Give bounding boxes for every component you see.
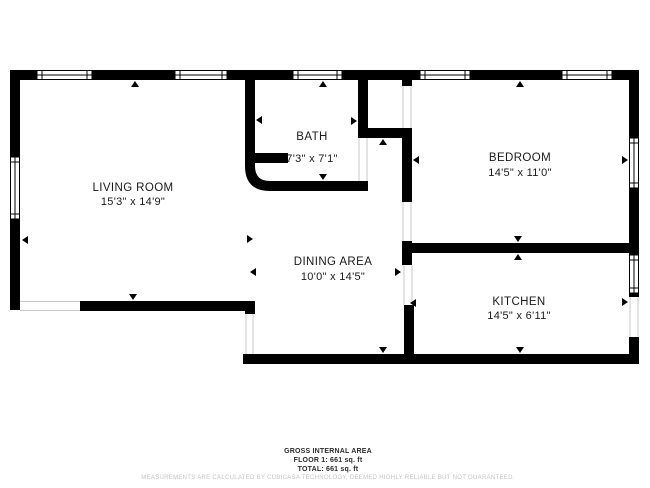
dimension-arrow-icon [22,236,28,244]
dimension-arrow-icon [256,116,262,124]
dimension-arrow-icon [129,294,137,300]
room-name: BEDROOM [489,152,551,164]
dimension-arrow-icon [622,298,628,306]
room-name: LIVING ROOM [92,182,173,194]
footer: GROSS INTERNAL AREA FLOOR 1: 661 sq. ft … [141,448,514,481]
living-room-bottom-wall [80,301,255,311]
room-dimensions: 7'3" x 7'1" [286,153,337,165]
dimension-arrow-icon [319,174,327,180]
total-area-line: TOTAL: 661 sq. ft [298,466,359,473]
central-wall-upper-segment [402,128,412,202]
window-symbol [630,138,639,188]
window-symbol [37,71,92,80]
floor-area-line: FLOOR 1: 661 sq. ft [294,457,363,464]
measurement-disclaimer: MEASUREMENTS ARE CALCULATED BY CUBICASA … [141,475,514,481]
room-labels: LIVING ROOM 15'3" x 14'9" BATH 7'3" x 7'… [92,131,551,322]
bedroom-kitchen-divider-wall [402,243,639,253]
central-wall-top-stub [402,80,412,86]
gross-internal-area-title: GROSS INTERNAL AREA [284,448,372,455]
room-name: DINING AREA [294,256,373,268]
room-name: KITCHEN [492,296,545,308]
dimension-arrow-icon [514,236,522,242]
dimension-arrow-icon [351,117,357,125]
window-symbol [11,157,20,219]
room-dimensions: 15'3" x 14'9" [101,196,165,208]
room-label-bath: BATH 7'3" x 7'1" [286,131,337,165]
dimension-arrow-icon [514,254,522,260]
room-dimensions: 14'5" x 11'0" [488,167,551,179]
dimension-arrow-icon [247,235,253,243]
dimension-arrow-icon [395,268,401,276]
room-label-bedroom: BEDROOM 14'5" x 11'0" [488,152,551,179]
window-symbol [630,255,639,293]
window-symbol [420,71,470,80]
room-name: BATH [296,131,327,143]
central-wall-lower-segment [404,305,414,364]
dimension-arrow-icon [379,139,387,145]
room-label-dining-area: DINING AREA 10'0" x 14'5" [294,256,373,283]
living-room-bottom-wall-endcap [245,301,255,314]
room-label-kitchen: KITCHEN 14'5" x 6'11" [487,296,550,322]
dimension-arrow-icon [250,268,256,276]
dimension-arrow-icon [379,347,387,353]
window-symbol [293,71,342,80]
bath-left-wall [245,80,255,155]
window-symbol [175,71,227,80]
dimension-arrow-icon [319,81,327,87]
dimension-arrow-icon [516,81,524,87]
dimension-arrow-icon [131,81,139,87]
room-dimensions: 14'5" x 6'11" [487,310,550,322]
bottom-exterior-wall [243,354,639,364]
room-label-living-room: LIVING ROOM 15'3" x 14'9" [92,182,173,208]
floor-plan: LIVING ROOM 15'3" x 14'9" BATH 7'3" x 7'… [0,0,650,488]
bath-interior-wall-stub [255,153,288,163]
dimension-arrow-icon [516,347,524,353]
dimension-arrow-icon [622,156,628,164]
window-symbol [562,71,612,80]
dimension-arrow-icon [413,156,419,164]
floor-plan-page: LIVING ROOM 15'3" x 14'9" BATH 7'3" x 7'… [0,0,650,488]
room-dimensions: 10'0" x 14'5" [301,271,365,283]
